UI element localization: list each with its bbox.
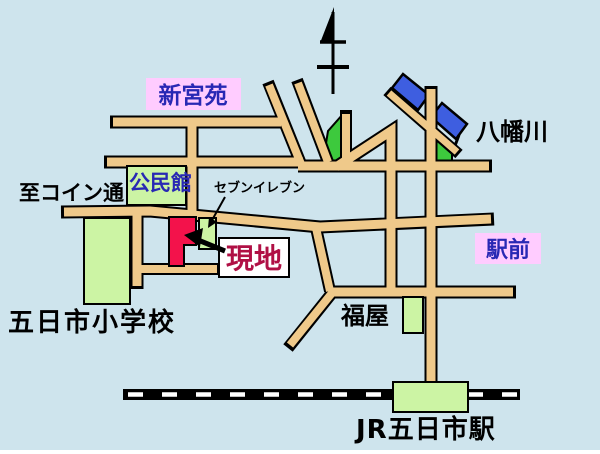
elementary-school-block bbox=[84, 218, 130, 304]
fukuya-label: 福屋 bbox=[340, 302, 389, 330]
to-coin-street-label: 至コイン通 bbox=[19, 181, 124, 205]
yahatagawa-label: 八幡川 bbox=[476, 118, 548, 146]
kominkan-label: 公民館 bbox=[129, 171, 192, 195]
shinguen-label: 新宮苑 bbox=[159, 82, 228, 109]
station-building bbox=[393, 382, 468, 412]
genchi-label: 現地 bbox=[226, 242, 282, 275]
elementary-school-label: 五日市小学校 bbox=[8, 307, 176, 338]
fukuya-block bbox=[403, 297, 423, 333]
ekimae-label: 駅前 bbox=[486, 237, 530, 263]
seven-eleven-label: セブンイレブン bbox=[214, 180, 305, 196]
location-map: 新宮苑 八幡川 至コイン通 公民館 セブンイレブン 現地 駅前 福屋 五日市小学… bbox=[0, 0, 600, 450]
jr-station-label: JR五日市駅 bbox=[354, 414, 496, 445]
